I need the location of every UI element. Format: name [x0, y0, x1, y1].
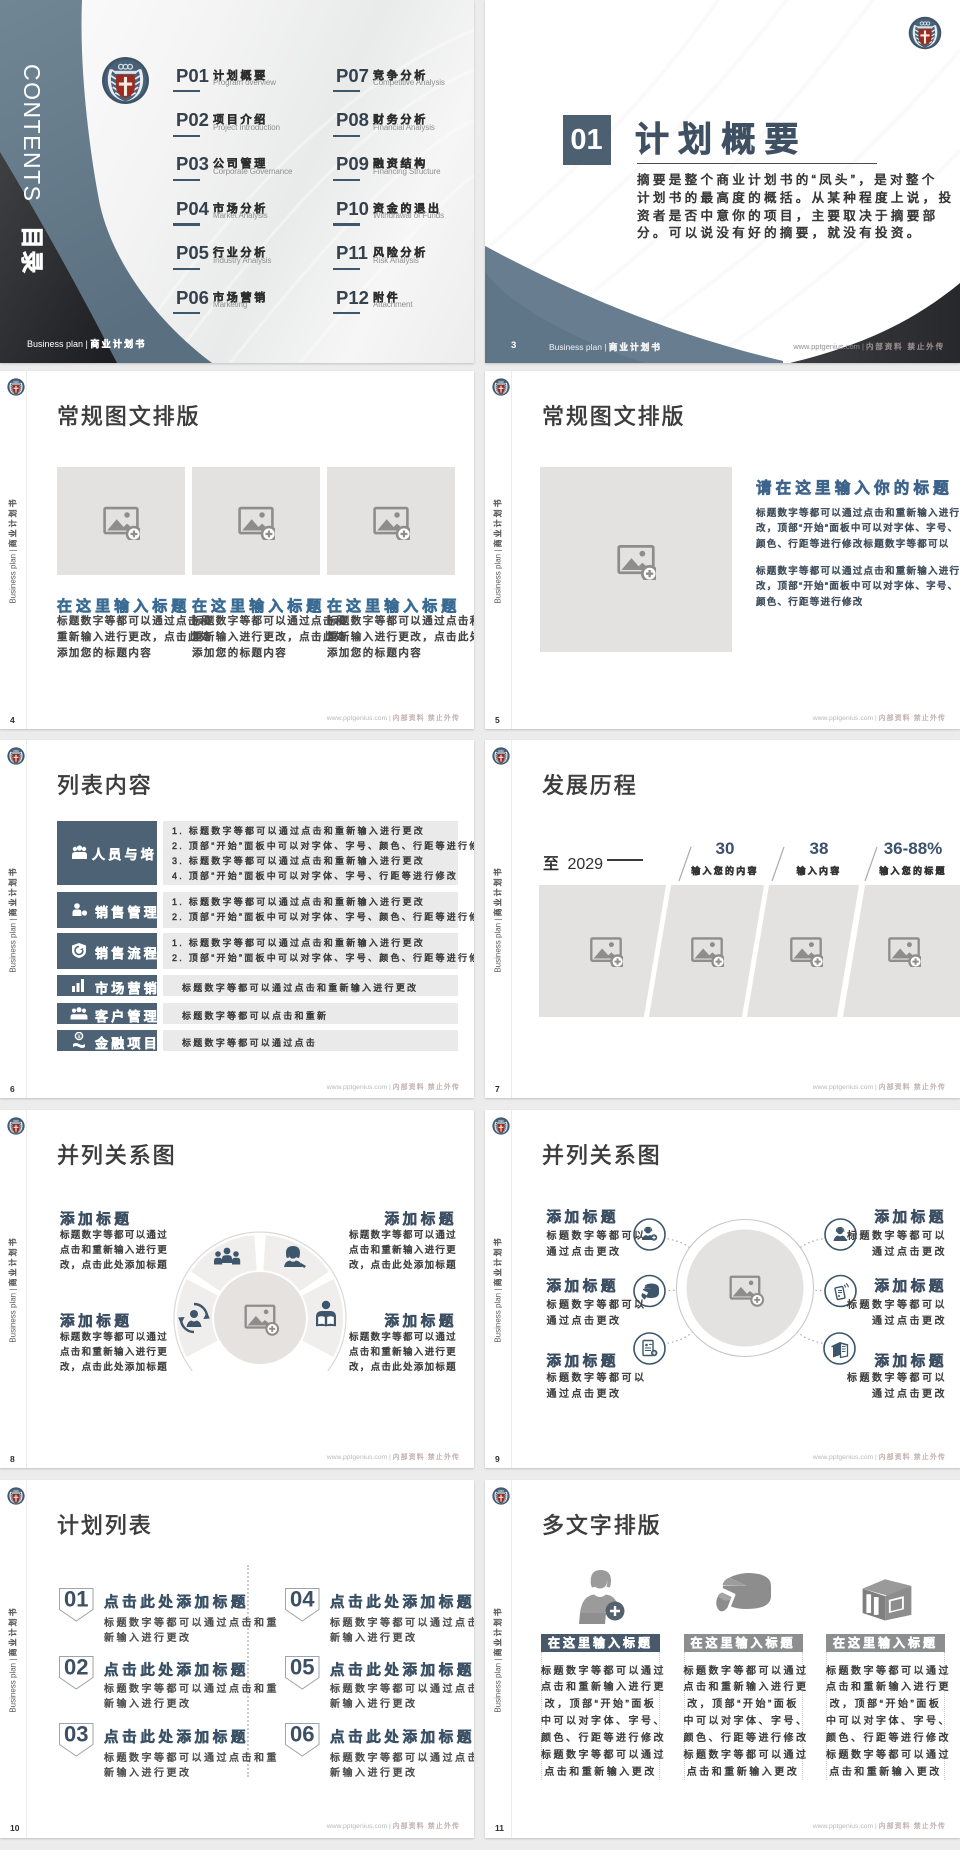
svg-text:03: 03: [64, 1723, 88, 1747]
svg-text:02: 02: [64, 1656, 88, 1680]
svg-text:05: 05: [290, 1656, 314, 1680]
svg-text:01: 01: [64, 1588, 88, 1612]
svg-text:06: 06: [290, 1723, 314, 1747]
svg-text:04: 04: [290, 1588, 315, 1612]
